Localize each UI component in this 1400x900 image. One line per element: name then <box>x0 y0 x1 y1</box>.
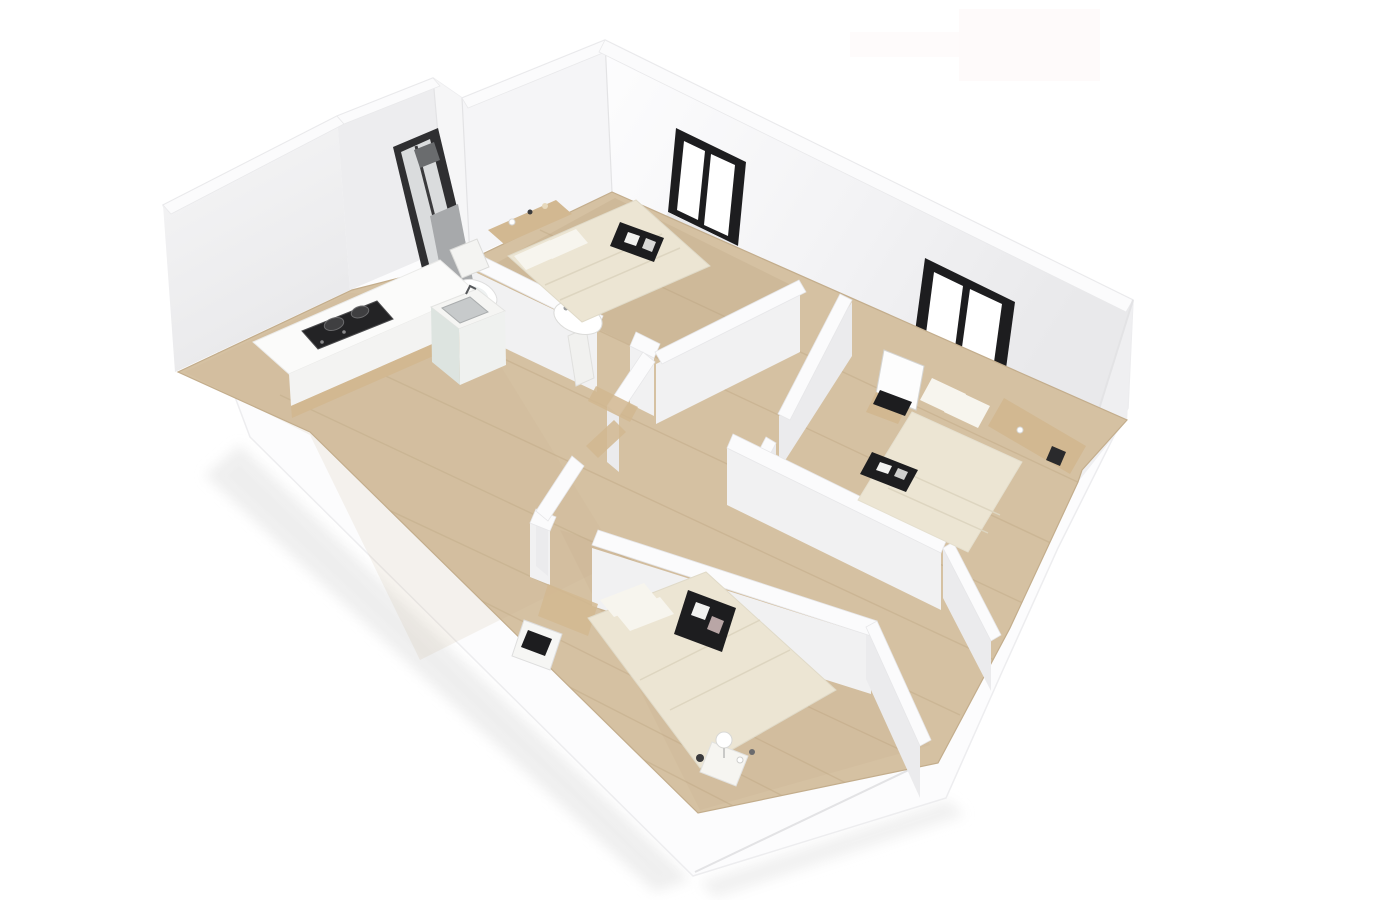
shelf-decor-item <box>509 219 515 225</box>
decor-bottle <box>737 757 743 763</box>
floor-plan-render <box>0 0 1400 900</box>
floor-plan-page <box>0 0 1400 900</box>
table-lamp <box>716 732 732 748</box>
decor-bottle <box>696 754 704 762</box>
shelf-decor-item <box>542 203 548 209</box>
decor-bottle <box>749 749 755 755</box>
background-tint-patch <box>959 9 1100 81</box>
shelf-decor-item <box>1017 427 1023 433</box>
cooktop-knob <box>320 340 324 344</box>
cooktop-knob <box>342 330 346 334</box>
shelf-decor-item <box>528 210 533 215</box>
background-tint-patch-2 <box>850 32 959 57</box>
